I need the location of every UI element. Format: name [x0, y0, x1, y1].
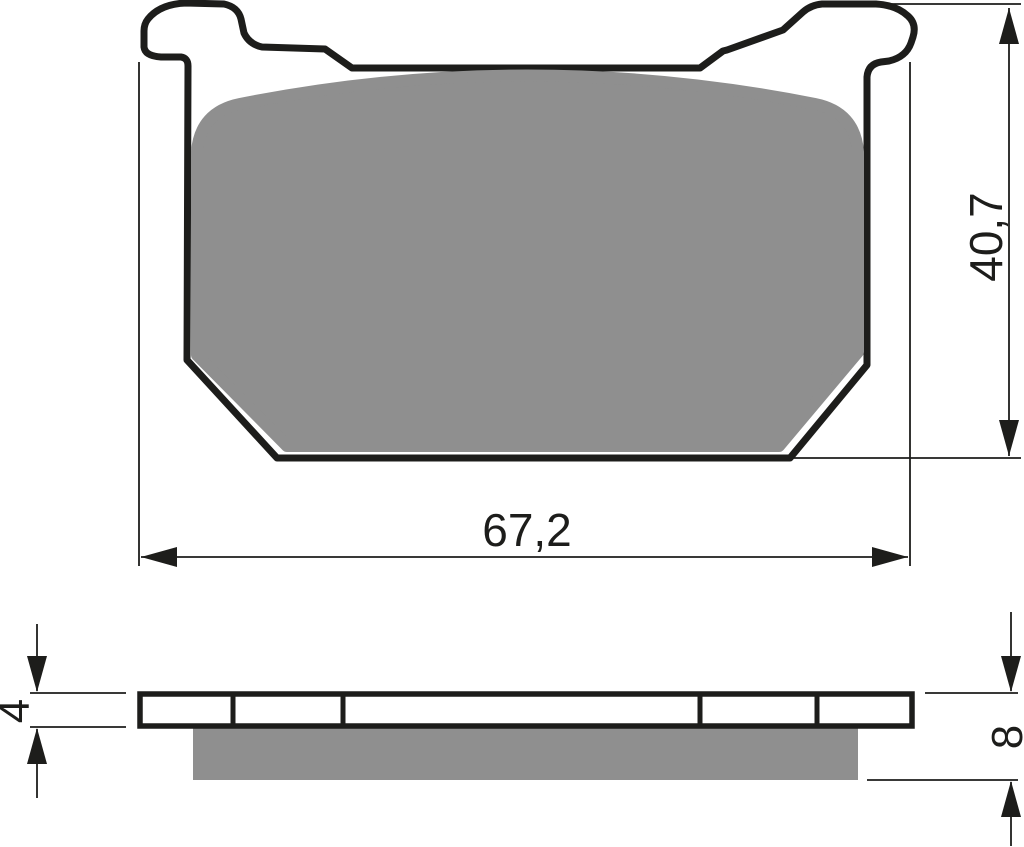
total-arrow-down-icon: [1001, 656, 1021, 692]
dimension-total-thickness: 8: [867, 612, 1024, 846]
plate-arrow-up-icon: [27, 728, 47, 764]
drawing-page: 67,2 40,7: [0, 0, 1024, 847]
friction-material-face: [197, 76, 858, 447]
backplate-edge: [140, 694, 912, 726]
friction-material-edge: [193, 726, 858, 780]
width-dimension-label: 67,2: [482, 504, 572, 556]
width-arrow-left-icon: [141, 547, 177, 567]
plate-thickness-label: 4: [0, 699, 39, 723]
height-dimension-label: 40,7: [960, 192, 1012, 282]
technical-drawing-canvas: 67,2 40,7: [0, 0, 1024, 847]
plate-arrow-down-icon: [27, 656, 47, 692]
dimension-backplate-thickness: 4: [0, 624, 126, 798]
width-arrow-right-icon: [872, 547, 908, 567]
pad-top-view: [144, 3, 914, 458]
pad-side-view: [140, 694, 912, 780]
height-arrow-top-icon: [999, 8, 1019, 44]
height-arrow-bottom-icon: [999, 420, 1019, 456]
total-thickness-label: 8: [983, 725, 1024, 749]
total-arrow-up-icon: [1001, 781, 1021, 817]
